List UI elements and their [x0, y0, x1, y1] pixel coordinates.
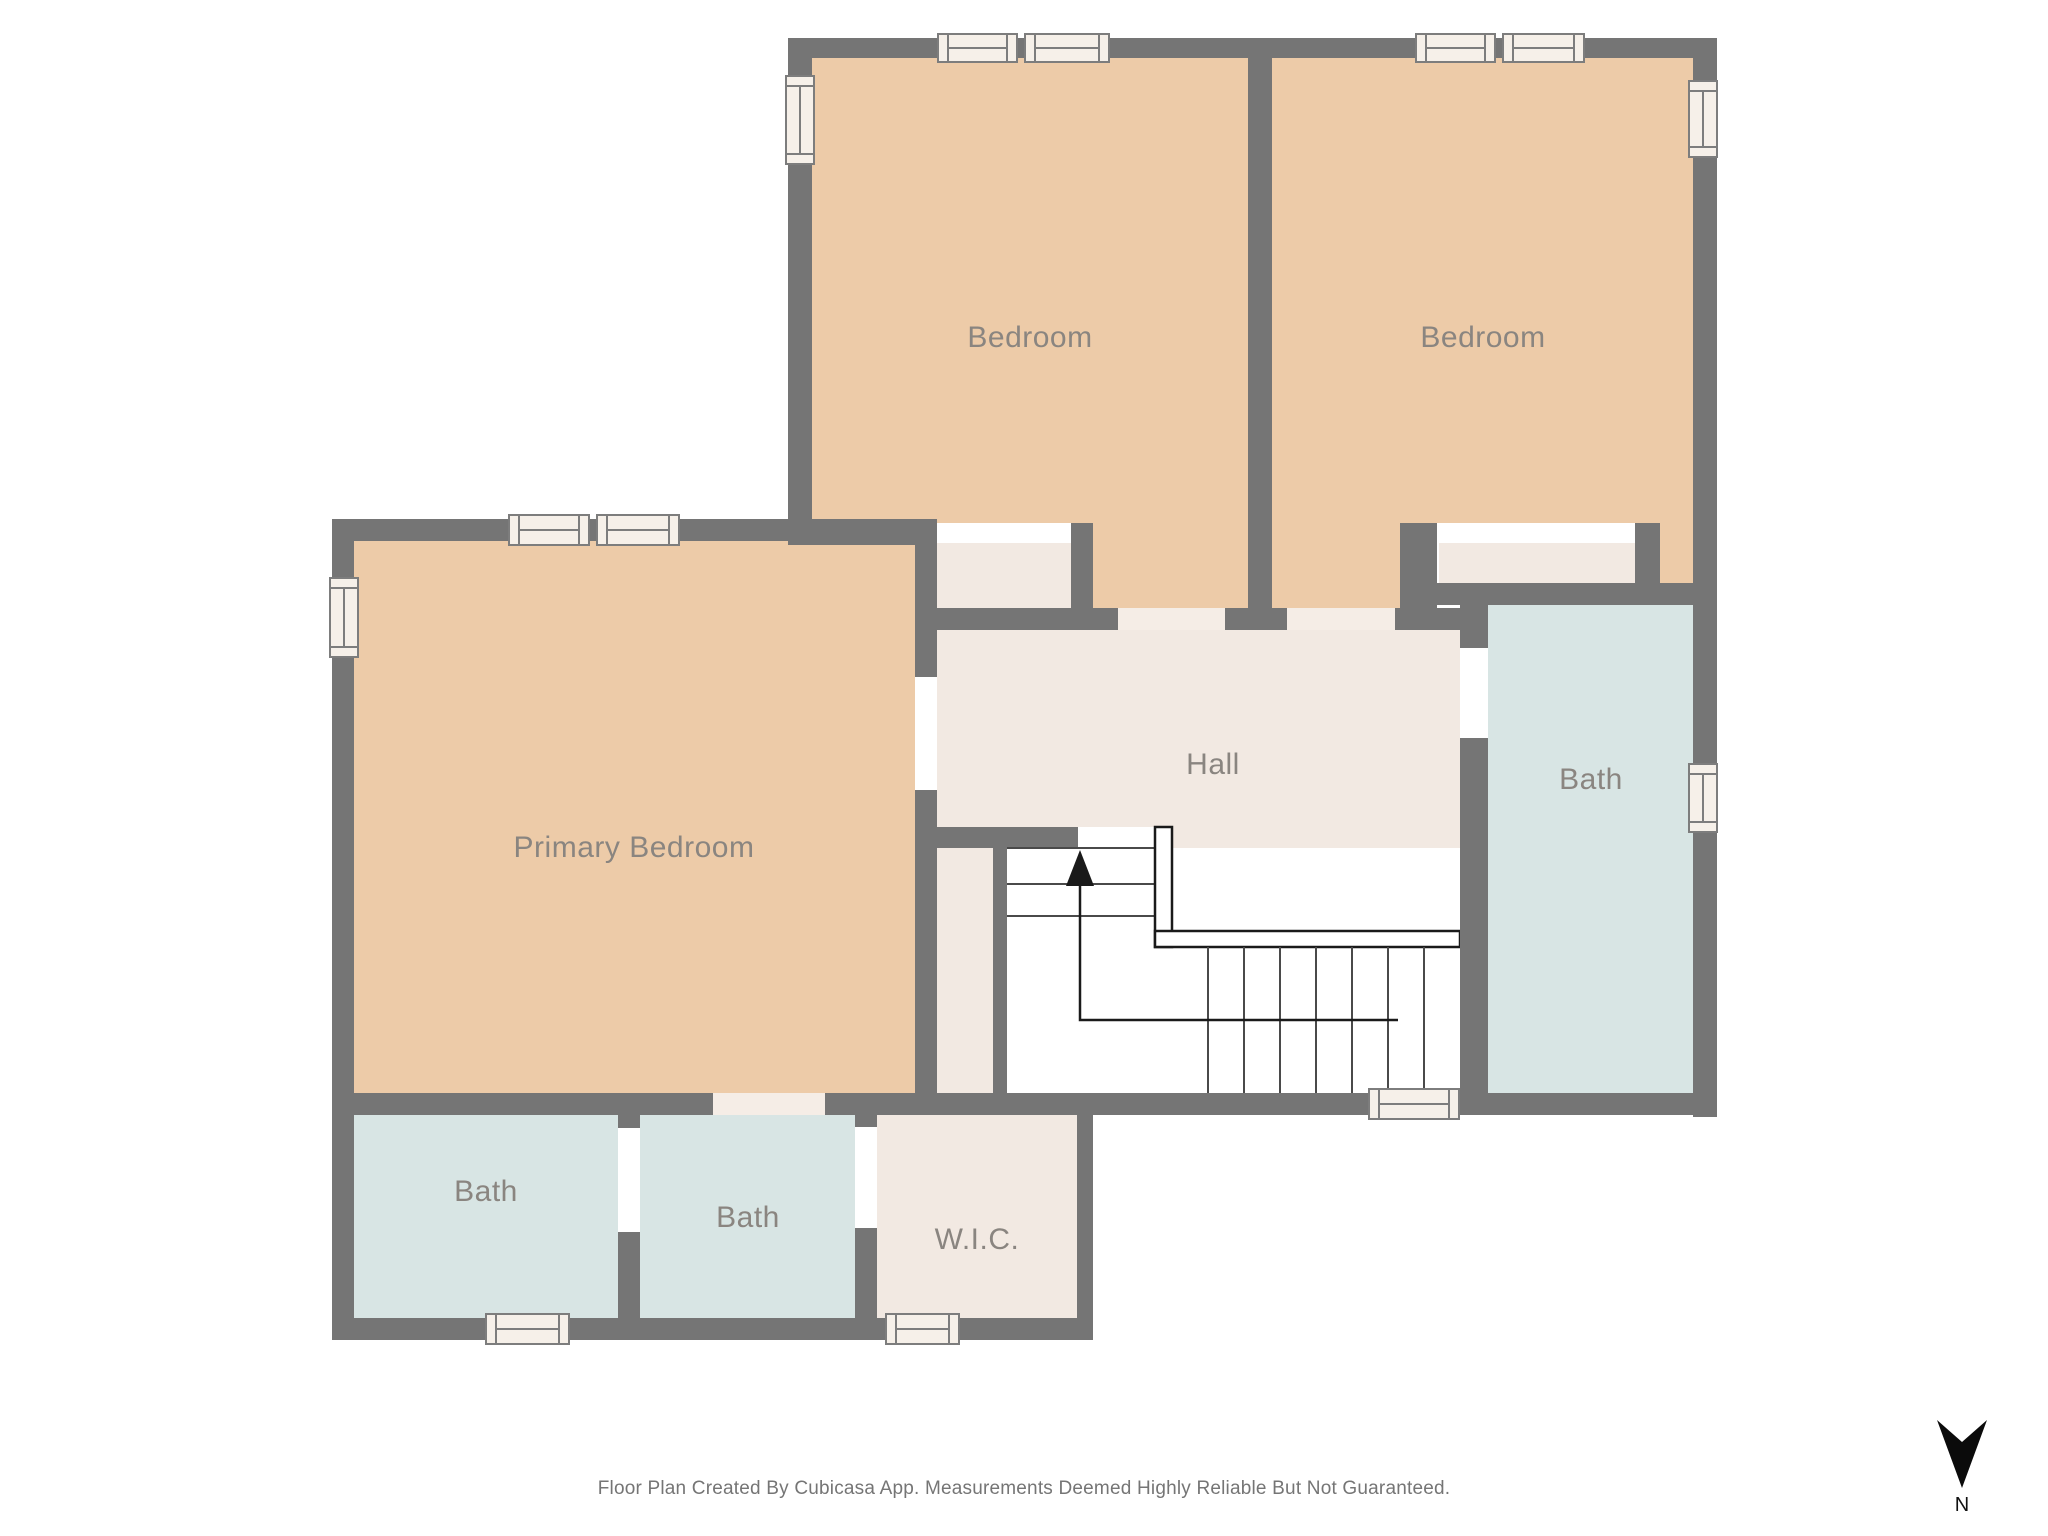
wall-closet-right-divider — [1635, 523, 1660, 583]
bedroom-right-floor — [1272, 58, 1693, 523]
wic-floor — [877, 1115, 1077, 1318]
door-opening-bedroom-right-hall — [1287, 608, 1395, 630]
bedroom-left-entry-neck — [1093, 523, 1248, 608]
window-bedroom-right-top-a — [1415, 33, 1496, 63]
window-primary-top-b — [596, 514, 680, 546]
window-stairs-south — [1368, 1088, 1460, 1120]
bedroom-right-entry-neck — [1272, 523, 1400, 608]
closet-opening-left — [937, 523, 1071, 543]
wall-hall-top-c — [1395, 608, 1460, 630]
wall-closet-left-divider — [1071, 523, 1093, 608]
wall-hall-top-b — [1225, 608, 1287, 630]
compass-north-label: N — [1936, 1495, 1988, 1515]
bedroom-left-closet-nook — [937, 543, 1071, 608]
wall-hall-bath-lower — [1460, 738, 1488, 1093]
room-label-primary-bedroom: Primary Bedroom — [514, 833, 755, 863]
footer-disclaimer: Floor Plan Created By Cubicasa App. Meas… — [0, 1478, 2048, 1500]
room-label-wic: W.I.C. — [935, 1225, 1020, 1255]
bath-lower-left-floor — [354, 1115, 618, 1318]
wall-bath-upper-top — [1437, 583, 1717, 605]
room-label-bath-lower-mid: Bath — [716, 1203, 780, 1233]
door-opening-bath2-wic — [855, 1127, 877, 1228]
primary-bedroom-floor — [354, 541, 915, 1093]
window-primary-top-a — [508, 514, 590, 546]
door-opening-primary-bath-mid — [713, 1093, 825, 1115]
stair-railing — [1155, 827, 1460, 947]
window-bath-upper-east — [1688, 763, 1718, 833]
window-bedroom-left-top-a — [937, 33, 1018, 63]
wall-hall-bath-upper — [1460, 605, 1488, 648]
wall-right-outer — [1693, 38, 1717, 1117]
window-bedroom-right-top-b — [1502, 33, 1585, 63]
door-opening-bath1-bath2 — [618, 1128, 640, 1232]
door-opening-bedroom-left-hall — [1118, 608, 1225, 630]
bedroom-right-corner-strip — [1660, 523, 1693, 583]
wall-neck-right-divider — [1400, 523, 1437, 608]
room-label-bedroom-left: Bedroom — [967, 323, 1092, 353]
compass: N — [1936, 1420, 1988, 1515]
wall-wic-right — [1077, 1115, 1093, 1340]
bedroom-left-floor — [812, 58, 1248, 523]
north-arrow-icon — [1936, 1420, 1988, 1488]
wall-primary-right-upper — [915, 519, 937, 677]
window-bedroom-right-east — [1688, 80, 1718, 158]
closet-opening-right — [1439, 523, 1635, 543]
hall-closet-strip — [937, 848, 993, 1093]
floor-plan: Bedroom Bedroom Primary Bedroom Hall Bat… — [0, 0, 2048, 1536]
room-label-bath-lower-left: Bath — [454, 1177, 518, 1207]
bath-upper-floor — [1488, 605, 1693, 1093]
window-bedroom-left-west — [785, 75, 815, 165]
wall-bottom-outer — [332, 1318, 1093, 1340]
room-label-hall: Hall — [1186, 750, 1240, 780]
wall-between-bedrooms — [1248, 58, 1272, 630]
door-opening-primary-hall — [915, 677, 937, 790]
wall-hall-top-a — [915, 608, 1118, 630]
window-bath1-south — [485, 1313, 570, 1345]
window-bedroom-left-top-b — [1024, 33, 1110, 63]
door-opening-hall-bath-upper — [1460, 648, 1488, 738]
window-primary-west — [329, 577, 359, 658]
room-label-bath-upper: Bath — [1559, 765, 1623, 795]
hall-floor — [937, 630, 1460, 827]
window-wic-south — [885, 1313, 960, 1345]
room-label-bedroom-right: Bedroom — [1420, 323, 1545, 353]
bedroom-right-closet-nook — [1439, 543, 1635, 583]
staircase — [1000, 820, 1460, 1100]
